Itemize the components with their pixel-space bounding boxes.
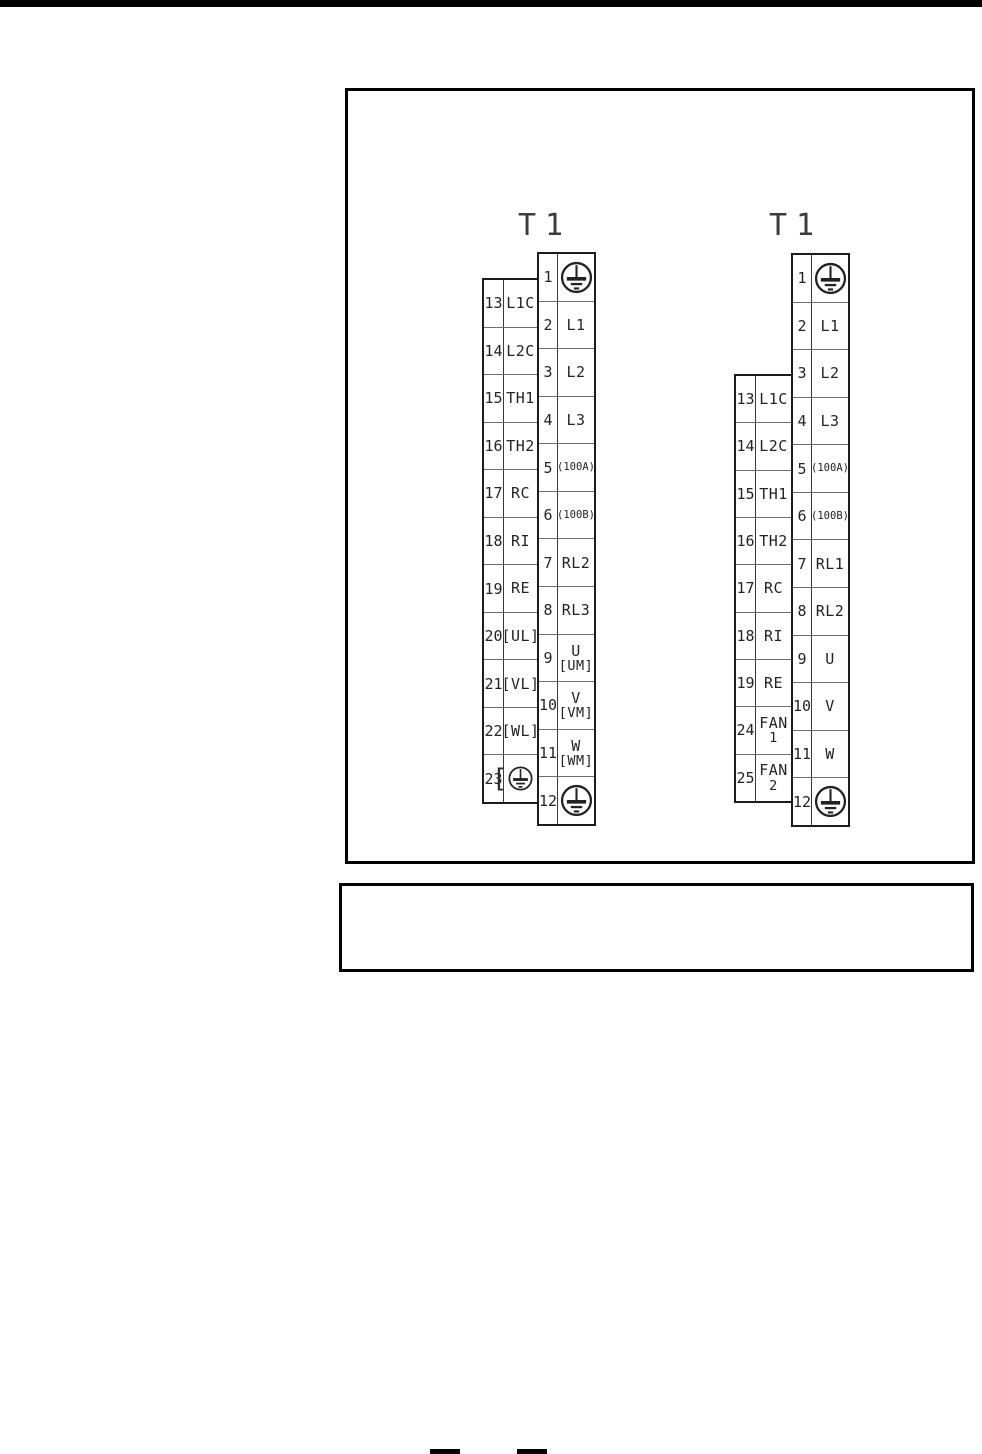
terminal-label: TH2 [504,423,537,470]
terminal-block-title-right: T1 [736,208,856,243]
terminal-label: L2 [812,350,848,397]
ground-icon [507,765,534,792]
terminal-number: 18 [736,613,756,659]
terminal-row-2: 2L1 [793,302,848,350]
terminal-label: L1C [504,280,537,327]
terminal-block-title-left: T1 [485,208,605,243]
terminal-row-14: 14L2C [484,327,537,375]
terminal-row-13: 13L1C [736,376,791,422]
terminal-label: [VL] [504,660,537,707]
terminal-number: 7 [539,539,558,586]
terminal-row-4: 4L3 [793,397,848,445]
terminal-row-10: 10V [793,682,848,730]
terminal-row-20: 20[UL] [484,612,537,660]
terminal-row-8: 8RL3 [539,586,594,634]
terminal-number: 2 [793,303,812,350]
terminal-row-13: 13L1C [484,280,537,327]
terminal-label: W [812,731,848,778]
terminal-number: 15 [484,375,504,422]
terminal-column-left-main: 12L13L24L35(100A)6(100B)7RL28RL39U[UM]10… [537,252,596,826]
ground-icon [813,784,848,819]
terminal-label: RC [504,470,537,517]
terminal-row-3: 3L2 [539,348,594,396]
terminal-number: 15 [736,471,756,517]
terminal-label: RL3 [558,587,594,634]
terminal-row-15: 15TH1 [484,374,537,422]
terminal-number: 25 [736,755,756,801]
terminal-row-3: 3L2 [793,349,848,397]
terminal-label: L2C [504,328,537,375]
terminal-number: 11 [793,731,812,778]
terminal-row-23: 23[] [484,754,537,802]
terminal-number: 6 [793,493,812,540]
terminal-number: 10 [539,682,558,729]
terminal-row-19: 19RE [484,564,537,612]
terminal-row-5: 5(100A) [539,443,594,491]
terminal-label: RE [504,565,537,612]
terminal-number: 9 [539,635,558,682]
note-box [339,883,974,972]
ground-icon [559,260,594,295]
terminal-number: 3 [539,349,558,396]
terminal-label: V[VM] [558,682,594,729]
terminal-number: 6 [539,492,558,539]
terminal-label: U[UM] [558,635,594,682]
ground-icon-cell [812,778,848,825]
terminal-row-22: 22[WL] [484,707,537,755]
terminal-label: L2C [756,423,791,469]
terminal-number: 1 [793,255,812,302]
terminal-number: 8 [793,588,812,635]
terminal-row-2: 2L1 [539,301,594,349]
terminal-row-19: 19RE [736,659,791,706]
terminal-label: L2 [558,349,594,396]
terminal-number: 16 [736,518,756,564]
terminal-label: L3 [558,397,594,444]
terminal-number: 13 [484,280,504,327]
terminal-label: V [812,683,848,730]
terminal-row-1: 1 [539,254,594,301]
terminal-row-1: 1 [793,255,848,302]
ground-icon-cell [558,777,594,824]
page-bottom-mark-right [517,1449,547,1454]
terminal-row-9: 9U[UM] [539,634,594,682]
terminal-row-7: 7RL2 [539,538,594,586]
terminal-number: 4 [793,398,812,445]
terminal-row-4: 4L3 [539,396,594,444]
terminal-label: TH1 [756,471,791,517]
terminal-label: L1 [812,303,848,350]
terminal-number: 13 [736,376,756,422]
terminal-label: U [812,636,848,683]
terminal-row-15: 15TH1 [736,470,791,517]
terminal-label: L3 [812,398,848,445]
terminal-row-16: 16TH2 [484,422,537,470]
terminal-row-16: 16TH2 [736,517,791,564]
terminal-label: W[WM] [558,730,594,777]
terminal-column-right-main: 12L13L24L35(100A)6(100B)7RL18RL29U10V11W… [791,253,850,827]
terminal-label: TH1 [504,375,537,422]
terminal-number: 14 [484,328,504,375]
page-header-bar [0,0,982,7]
terminal-label: RI [504,518,537,565]
terminal-label: (100B) [812,493,848,540]
ground-icon-cell [812,255,848,302]
terminal-number: 16 [484,423,504,470]
terminal-label: RI [756,613,791,659]
terminal-label: L1C [756,376,791,422]
terminal-label: RL1 [812,540,848,587]
terminal-number: 17 [736,565,756,611]
diagram-frame-box [345,88,975,864]
terminal-row-7: 7RL1 [793,539,848,587]
terminal-column-left-side: 13L1C14L2C15TH116TH217RC18RI19RE20[UL]21… [482,278,537,804]
terminal-row-6: 6(100B) [539,491,594,539]
terminal-row-5: 5(100A) [793,444,848,492]
terminal-number: 5 [793,445,812,492]
terminal-row-8: 8RL2 [793,587,848,635]
terminal-number: 19 [736,660,756,706]
terminal-row-12: 12 [539,776,594,824]
terminal-label: L1 [558,302,594,349]
terminal-number: 18 [484,518,504,565]
terminal-label: TH2 [756,518,791,564]
terminal-label: (100B) [558,492,594,539]
terminal-label: FAN1 [756,707,791,753]
terminal-column-right-side: 13L1C14L2C15TH116TH217RC18RI19RE24FAN125… [734,374,791,803]
terminal-label: RE [756,660,791,706]
terminal-number: 8 [539,587,558,634]
terminal-number: 1 [539,254,558,301]
ground-bracketed-icon-cell: [] [504,755,537,802]
terminal-number: 10 [793,683,812,730]
terminal-row-11: 11W [793,730,848,778]
terminal-row-12: 12 [793,777,848,825]
terminal-number: 7 [793,540,812,587]
terminal-row-24: 24FAN1 [736,706,791,753]
ground-icon-cell [558,254,594,301]
left-bracket: [ [492,766,508,792]
terminal-number: 3 [793,350,812,397]
terminal-label: RC [756,565,791,611]
terminal-row-25: 25FAN2 [736,754,791,801]
ground-icon [559,783,594,818]
terminal-label: [UL] [504,613,537,660]
terminal-row-6: 6(100B) [793,492,848,540]
terminal-row-11: 11W[WM] [539,729,594,777]
terminal-number: 12 [793,778,812,825]
terminal-label: (100A) [558,444,594,491]
terminal-row-18: 18RI [736,612,791,659]
terminal-number: 9 [793,636,812,683]
terminal-label: RL2 [558,539,594,586]
terminal-label: FAN2 [756,755,791,801]
terminal-number: 12 [539,777,558,824]
terminal-number: 2 [539,302,558,349]
terminal-row-14: 14L2C [736,422,791,469]
terminal-number: 17 [484,470,504,517]
terminal-number: 4 [539,397,558,444]
terminal-row-9: 9U [793,635,848,683]
terminal-row-18: 18RI [484,517,537,565]
terminal-number: 19 [484,565,504,612]
page-bottom-mark-left [430,1449,460,1454]
terminal-label: (100A) [812,445,848,492]
terminal-label: [WL] [504,708,537,755]
terminal-row-10: 10V[VM] [539,681,594,729]
terminal-row-17: 17RC [484,469,537,517]
terminal-row-21: 21[VL] [484,659,537,707]
terminal-number: 11 [539,730,558,777]
terminal-label: RL2 [812,588,848,635]
terminal-row-17: 17RC [736,564,791,611]
terminal-number: 24 [736,707,756,753]
terminal-number: 14 [736,423,756,469]
terminal-number: 5 [539,444,558,491]
ground-icon [813,261,848,296]
